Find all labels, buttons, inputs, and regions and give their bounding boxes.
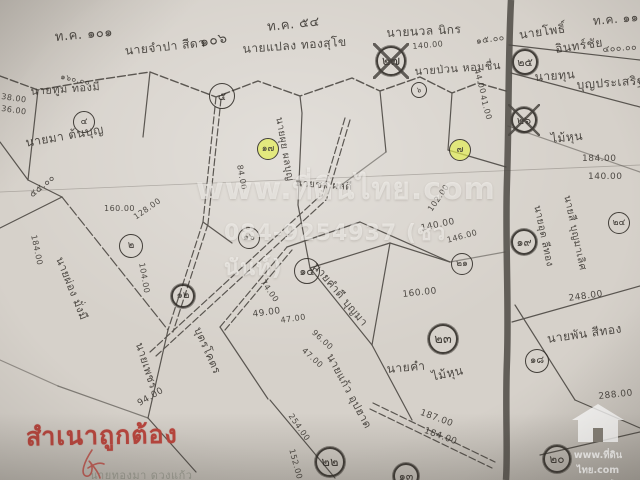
corner-logo-site: www.ที่ดินไทย.com <box>556 448 640 478</box>
road-layer <box>0 0 640 480</box>
corner-logo: www.ที่ดินไทย.com อสังหาริมทรัพย์ ซื้อ-ข… <box>556 404 640 480</box>
house-icon <box>572 404 624 442</box>
certification-signature <box>70 448 124 480</box>
survey-map-photo: ท.ค. ๑๐๑นายจำปา สีดา๑๐๖นายแปลง ทองสุโขท.… <box>0 0 640 480</box>
